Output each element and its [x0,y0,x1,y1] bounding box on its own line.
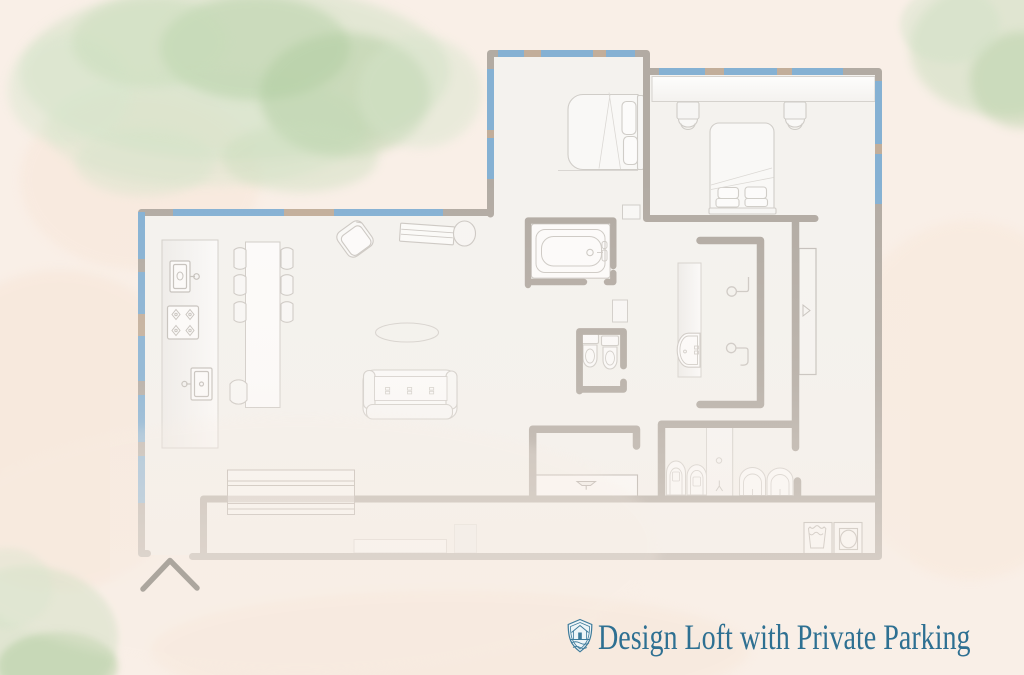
svg-text:Design Loft with Private Parki: Design Loft with Private Parking [598,617,971,657]
